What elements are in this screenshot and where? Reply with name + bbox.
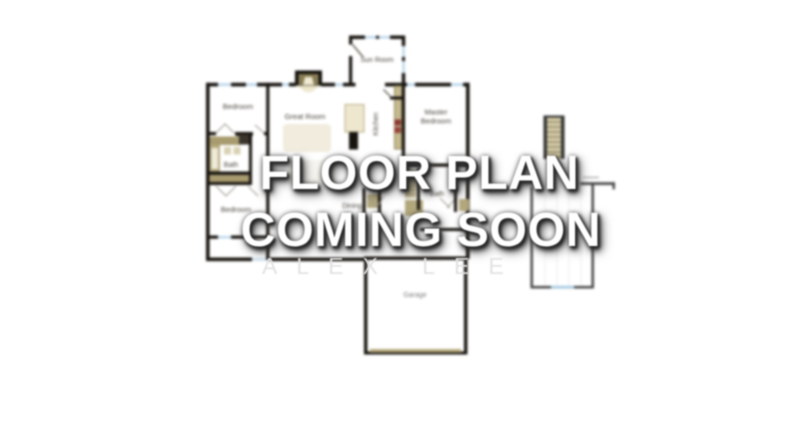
svg-text:Bedroom: Bedroom [223,102,253,111]
svg-text:Kitchen: Kitchen [373,112,380,135]
svg-text:Garage: Garage [403,292,426,299]
svg-text:Bath: Bath [224,162,239,169]
svg-text:Bedroom: Bedroom [421,117,451,126]
svg-text:Sun Room: Sun Room [360,57,393,64]
svg-text:Master: Master [425,108,448,117]
svg-text:Great Room: Great Room [285,112,326,121]
